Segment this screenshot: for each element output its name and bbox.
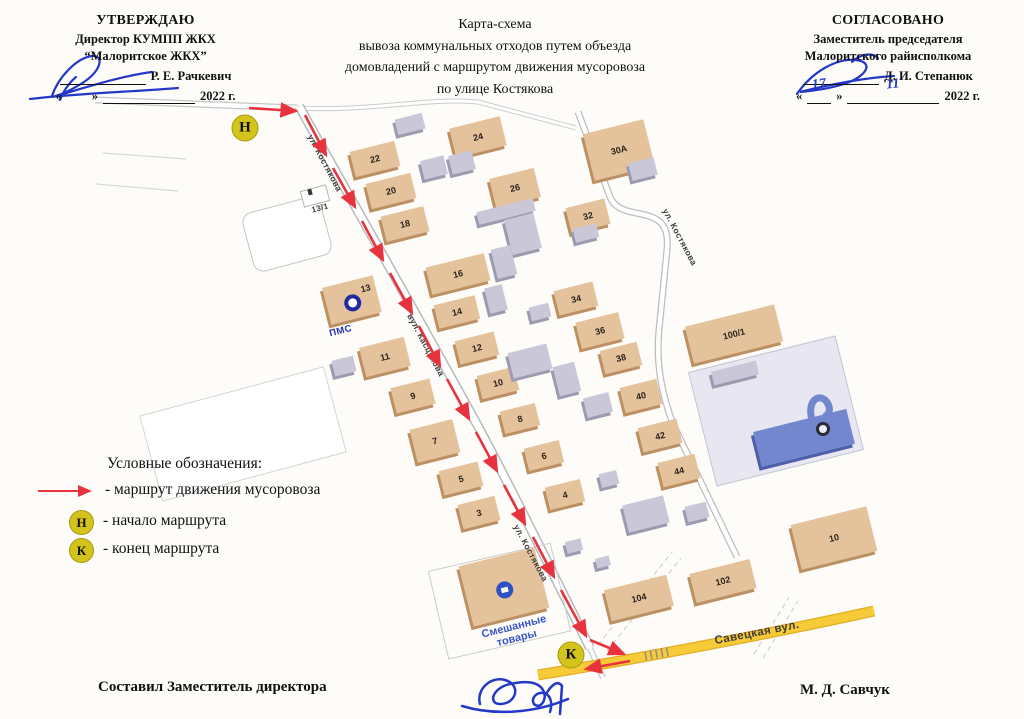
- quote-open: «: [796, 88, 802, 105]
- legend-end-marker: К: [69, 538, 94, 563]
- approval-left-year: 2022 г.: [200, 88, 236, 105]
- date-day-slot: 17: [807, 90, 831, 104]
- quote-close: »: [836, 88, 842, 105]
- footer-name: М. Д. Савчук: [800, 682, 890, 699]
- signature-line: [60, 71, 146, 85]
- water-slide-shape: [811, 398, 830, 420]
- legend-route-label: - маршрут движения мусоровоза: [105, 481, 320, 499]
- legend-title: Условные обозначения:: [107, 455, 262, 473]
- quote-open: «: [55, 88, 61, 105]
- handwritten-day: 17: [811, 76, 827, 96]
- approval-left-title: УТВЕРЖДАЮ: [28, 12, 263, 31]
- date-line: [103, 90, 195, 104]
- handwritten-month: 11: [886, 76, 901, 96]
- title-line2: вывоза коммунальных отходов путем объезд…: [295, 36, 695, 58]
- quote-close: »: [92, 88, 98, 105]
- approval-right-title: СОГЛАСОВАНО: [762, 12, 1014, 31]
- scanned-route-map-document: 22201824263230А1614121086413ПМС119753343…: [0, 0, 1024, 719]
- title-line4: по улице Костякова: [295, 79, 695, 101]
- signature-bottom: [462, 679, 568, 714]
- document-title: Карта-схема вывоза коммунальных отходов …: [295, 14, 695, 101]
- approval-right-line3: Малоритского райисполкома: [762, 48, 1014, 65]
- approval-left-name: Р. Е. Рачкевич: [151, 68, 232, 85]
- date-month-slot: 11: [847, 90, 939, 104]
- title-line3: домовладений с маршрутом движения мусоро…: [295, 57, 695, 79]
- approval-right-year: 2022 г.: [944, 88, 980, 105]
- approval-left-block: УТВЕРЖДАЮ Директор КУМПП ЖКХ “Малоритско…: [28, 12, 263, 104]
- legend-start-label: - начало маршрута: [103, 512, 226, 530]
- route-and-signatures-layer: [0, 0, 1024, 719]
- approval-left-line3: “Малоритское ЖКХ”: [28, 48, 263, 65]
- footer-composer: Составил Заместитель директора: [98, 679, 327, 696]
- title-line1: Карта-схема: [295, 14, 695, 36]
- approval-left-line2: Директор КУМПП ЖКХ: [28, 31, 263, 48]
- legend-start-marker: Н: [69, 510, 94, 535]
- approval-right-line2: Заместитель председателя: [762, 31, 1014, 48]
- approval-right-block: СОГЛАСОВАНО Заместитель председателя Мал…: [762, 12, 1014, 104]
- route-arrows: [38, 108, 630, 669]
- legend-end-label: - конец маршрута: [103, 540, 219, 558]
